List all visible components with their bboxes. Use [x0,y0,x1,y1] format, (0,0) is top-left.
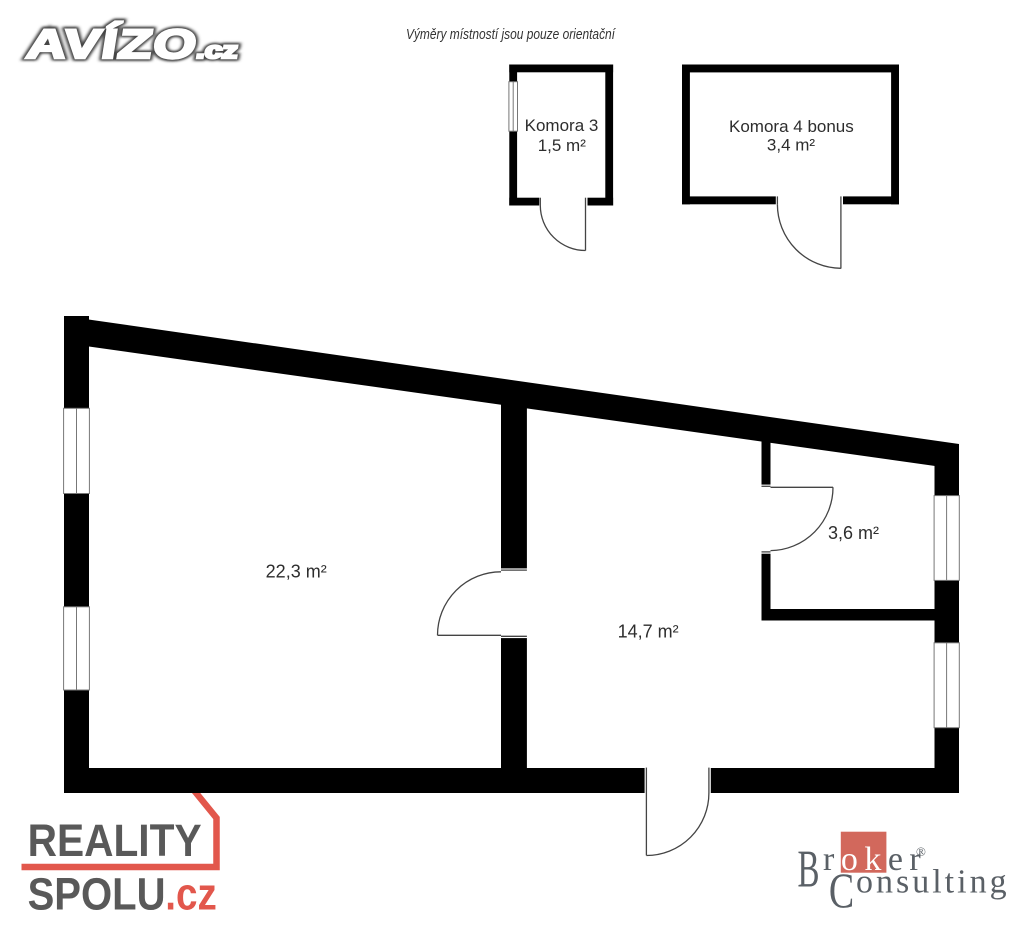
svg-text:B: B [798,840,820,898]
svg-text:1,5 m²: 1,5 m² [538,136,587,155]
svg-text:Komora 4 bonus: Komora 4 bonus [729,117,854,136]
svg-text:22,3 m²: 22,3 m² [266,562,327,582]
svg-text:3,4 m²: 3,4 m² [767,135,816,154]
svg-text:SPOLU: SPOLU [28,868,166,919]
svg-text:onsulting: onsulting [856,864,1010,901]
svg-text:.cz: .cz [165,868,217,919]
svg-text:Výměry místností jsou pouze or: Výměry místností jsou pouze orientační [406,27,617,43]
svg-text:C: C [829,862,854,918]
svg-text:REALITY: REALITY [28,815,202,866]
svg-text:3,6 m²: 3,6 m² [828,523,879,543]
svg-text:14,7 m²: 14,7 m² [618,622,679,642]
svg-text:®: ® [916,844,926,859]
svg-text:Komora 3: Komora 3 [525,116,599,135]
